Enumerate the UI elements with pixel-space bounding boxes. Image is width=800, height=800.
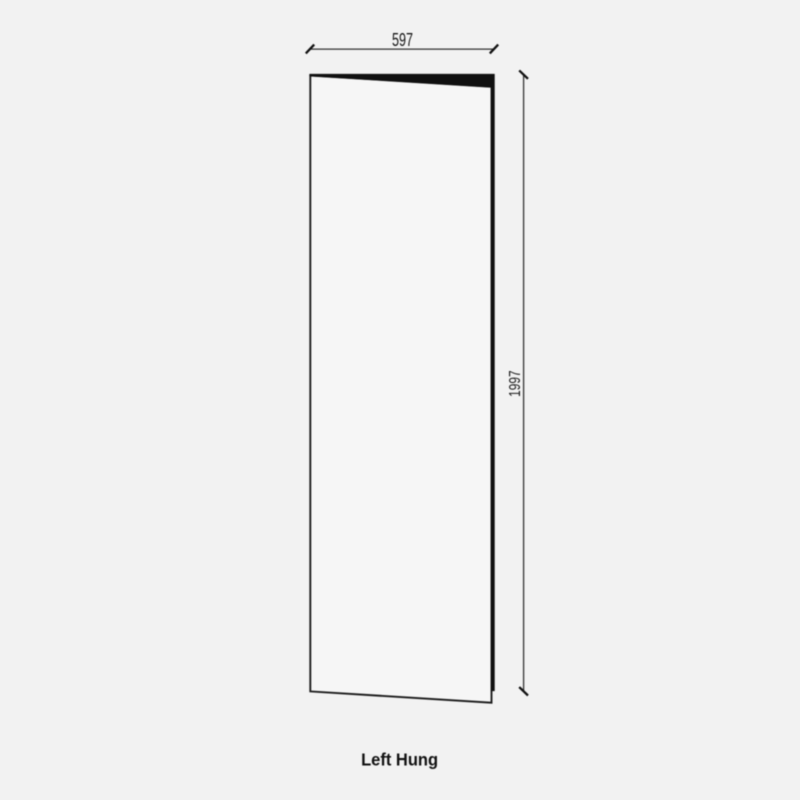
svg-text:1997: 1997 bbox=[507, 370, 524, 397]
svg-text:597: 597 bbox=[392, 29, 413, 50]
svg-text:Left Hung: Left Hung bbox=[361, 750, 438, 770]
